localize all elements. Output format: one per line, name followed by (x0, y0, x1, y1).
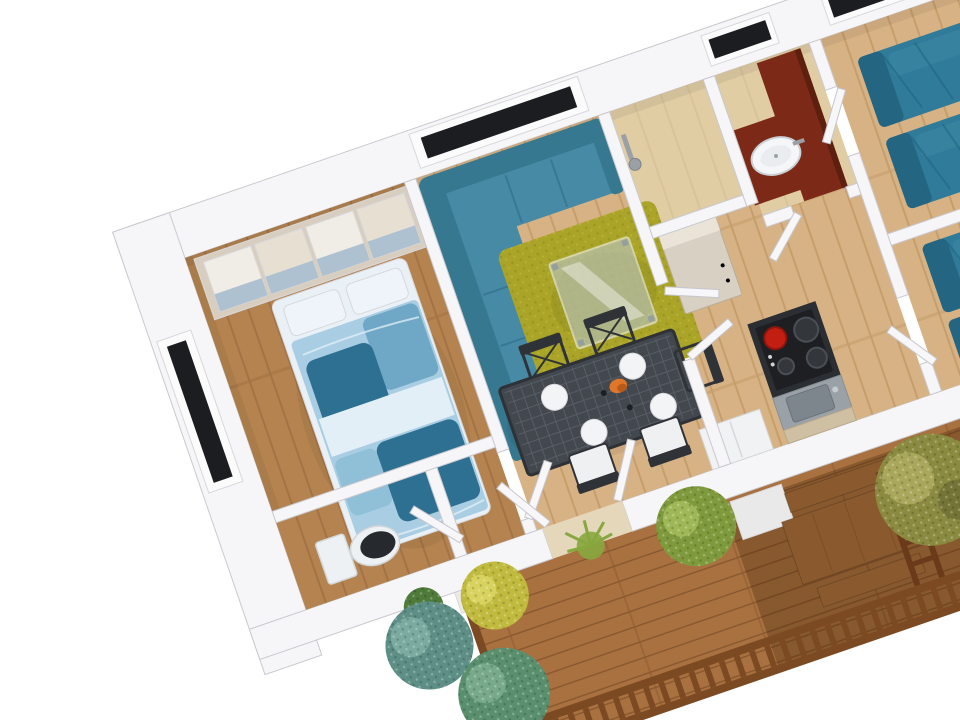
rotated-plan (113, 0, 960, 720)
floor-plan-render (0, 0, 960, 720)
floor-plan-canvas (0, 0, 960, 720)
